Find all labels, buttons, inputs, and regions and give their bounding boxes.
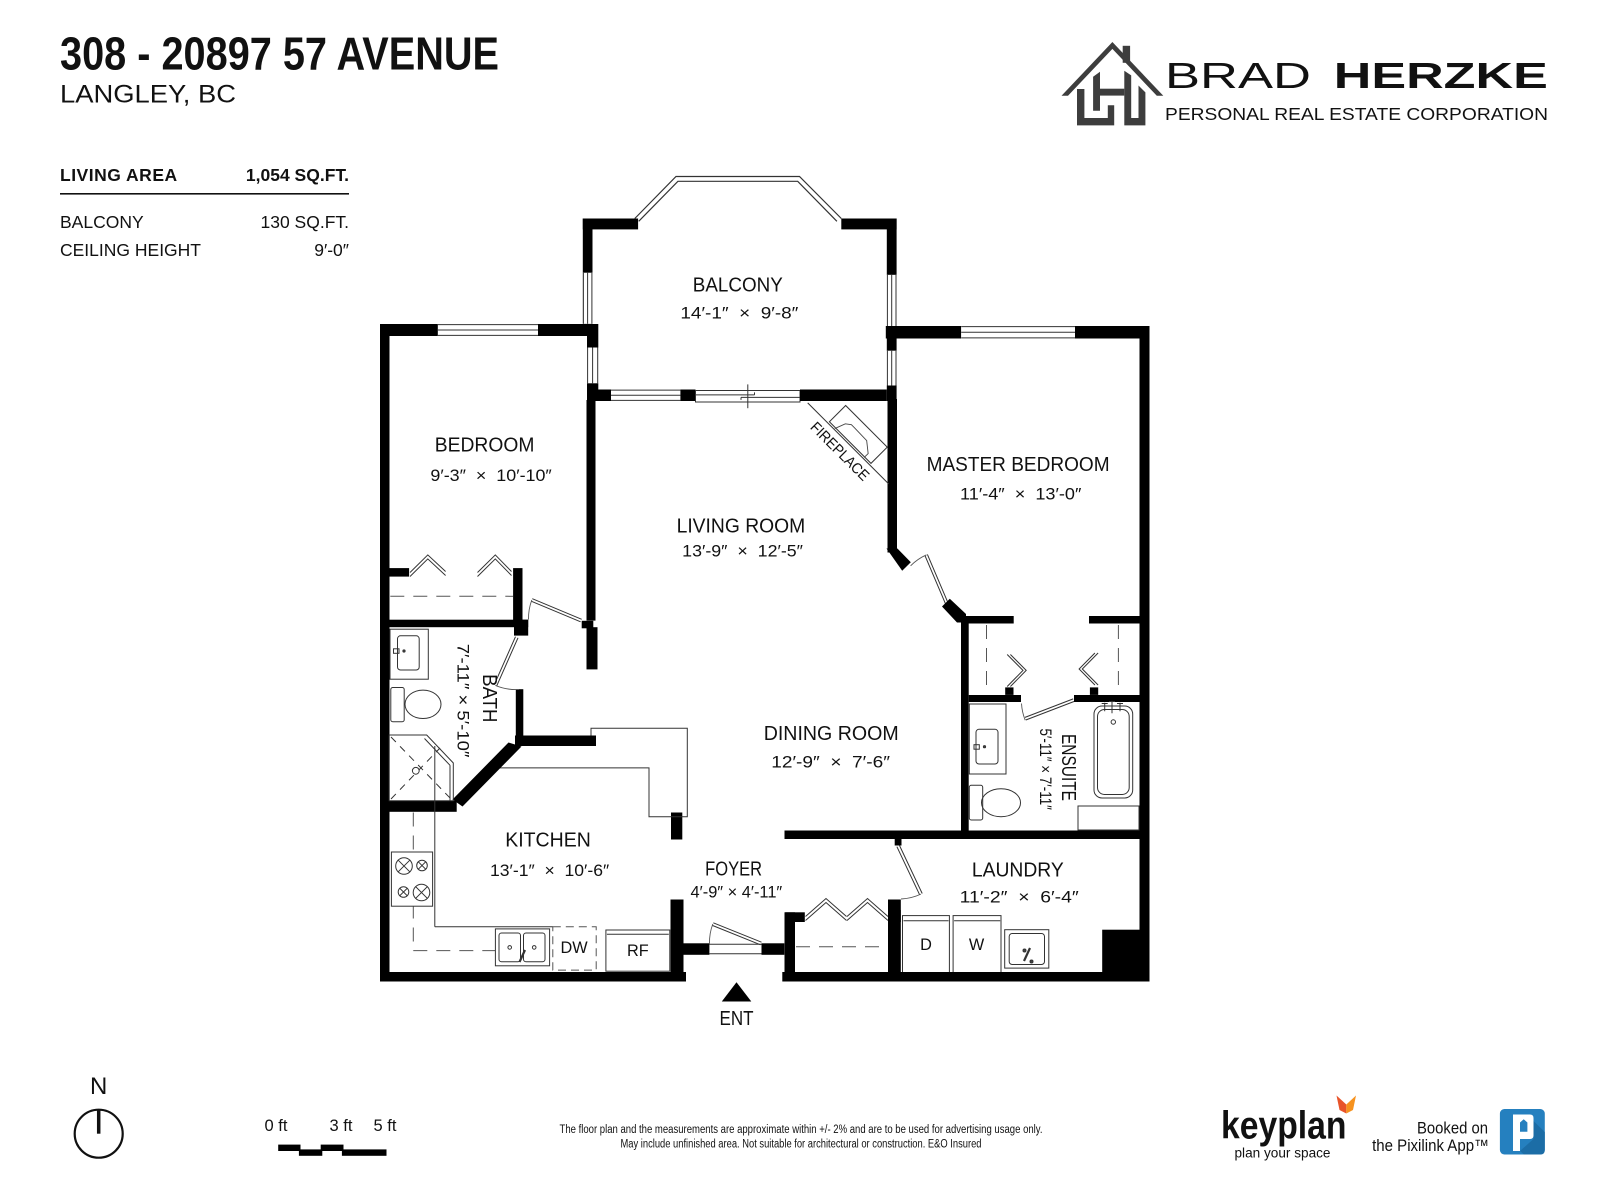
svg-text:LAUNDRY: LAUNDRY bbox=[972, 858, 1064, 881]
svg-text:LANGLEY, BC: LANGLEY, BC bbox=[60, 81, 236, 109]
svg-text:LIVING ROOM: LIVING ROOM bbox=[677, 514, 806, 537]
svg-text:BRAD: BRAD bbox=[1165, 55, 1311, 96]
svg-text:4′-9″ × 4′-11″: 4′-9″ × 4′-11″ bbox=[691, 883, 783, 901]
svg-text:LIVING AREA: LIVING AREA bbox=[60, 165, 178, 185]
svg-text:ENSUITE: ENSUITE bbox=[1057, 734, 1080, 801]
svg-text:Booked on: Booked on bbox=[1417, 1120, 1488, 1138]
svg-text:9′-3″ × 10′-10″: 9′-3″ × 10′-10″ bbox=[430, 467, 552, 485]
svg-text:BATH: BATH bbox=[478, 674, 501, 722]
svg-text:9′-0″: 9′-0″ bbox=[314, 240, 349, 260]
svg-text:May include unfinished area. N: May include unfinished area. Not suitabl… bbox=[621, 1139, 982, 1151]
svg-text:1,054 SQ.FT.: 1,054 SQ.FT. bbox=[246, 165, 349, 185]
svg-text:the Pixilink App™: the Pixilink App™ bbox=[1372, 1137, 1489, 1155]
svg-text:plan your space: plan your space bbox=[1235, 1146, 1331, 1161]
svg-text:308 - 20897 57 AVENUE: 308 - 20897 57 AVENUE bbox=[60, 28, 499, 80]
svg-text:CEILING HEIGHT: CEILING HEIGHT bbox=[60, 240, 201, 260]
svg-text:5 ft: 5 ft bbox=[374, 1117, 397, 1135]
svg-text:KITCHEN: KITCHEN bbox=[505, 829, 591, 852]
svg-text:BALCONY: BALCONY bbox=[693, 274, 783, 297]
svg-text:MASTER BEDROOM: MASTER BEDROOM bbox=[927, 453, 1110, 476]
svg-text:keyplan: keyplan bbox=[1221, 1105, 1347, 1148]
svg-text:13′-9″ × 12′-5″: 13′-9″ × 12′-5″ bbox=[682, 542, 803, 560]
svg-text:11′-4″ × 13′-0″: 11′-4″ × 13′-0″ bbox=[960, 485, 1082, 503]
svg-text:BALCONY: BALCONY bbox=[60, 212, 144, 232]
svg-text:13′-1″ × 10′-6″: 13′-1″ × 10′-6″ bbox=[490, 862, 609, 880]
svg-text:PERSONAL REAL ESTATE CORPORATI: PERSONAL REAL ESTATE CORPORATION bbox=[1165, 104, 1548, 124]
svg-text:7′-11″ × 5′-10″: 7′-11″ × 5′-10″ bbox=[454, 644, 472, 758]
svg-text:RF: RF bbox=[627, 942, 649, 960]
svg-text:ENT: ENT bbox=[720, 1008, 754, 1030]
svg-text:3 ft: 3 ft bbox=[330, 1117, 353, 1135]
svg-text:BEDROOM: BEDROOM bbox=[435, 434, 535, 457]
svg-text:W: W bbox=[969, 936, 985, 954]
svg-text:5′-11″ × 7′-11″: 5′-11″ × 7′-11″ bbox=[1036, 728, 1054, 810]
svg-text:12′-9″ × 7′-6″: 12′-9″ × 7′-6″ bbox=[771, 754, 890, 772]
svg-text:FOYER: FOYER bbox=[705, 857, 762, 880]
svg-text:0 ft: 0 ft bbox=[265, 1117, 288, 1135]
svg-text:DW: DW bbox=[560, 939, 588, 957]
svg-text:14′-1″ × 9′-8″: 14′-1″ × 9′-8″ bbox=[680, 305, 798, 323]
svg-text:11′-2″ × 6′-4″: 11′-2″ × 6′-4″ bbox=[960, 889, 1079, 907]
svg-text:D: D bbox=[920, 936, 932, 954]
svg-text:N: N bbox=[90, 1073, 107, 1100]
svg-text:The floor plan and the measure: The floor plan and the measurements are … bbox=[560, 1124, 1043, 1136]
svg-text:DINING ROOM: DINING ROOM bbox=[764, 722, 899, 745]
svg-text:130 SQ.FT.: 130 SQ.FT. bbox=[260, 212, 349, 232]
svg-text:HERZKE: HERZKE bbox=[1334, 55, 1548, 96]
